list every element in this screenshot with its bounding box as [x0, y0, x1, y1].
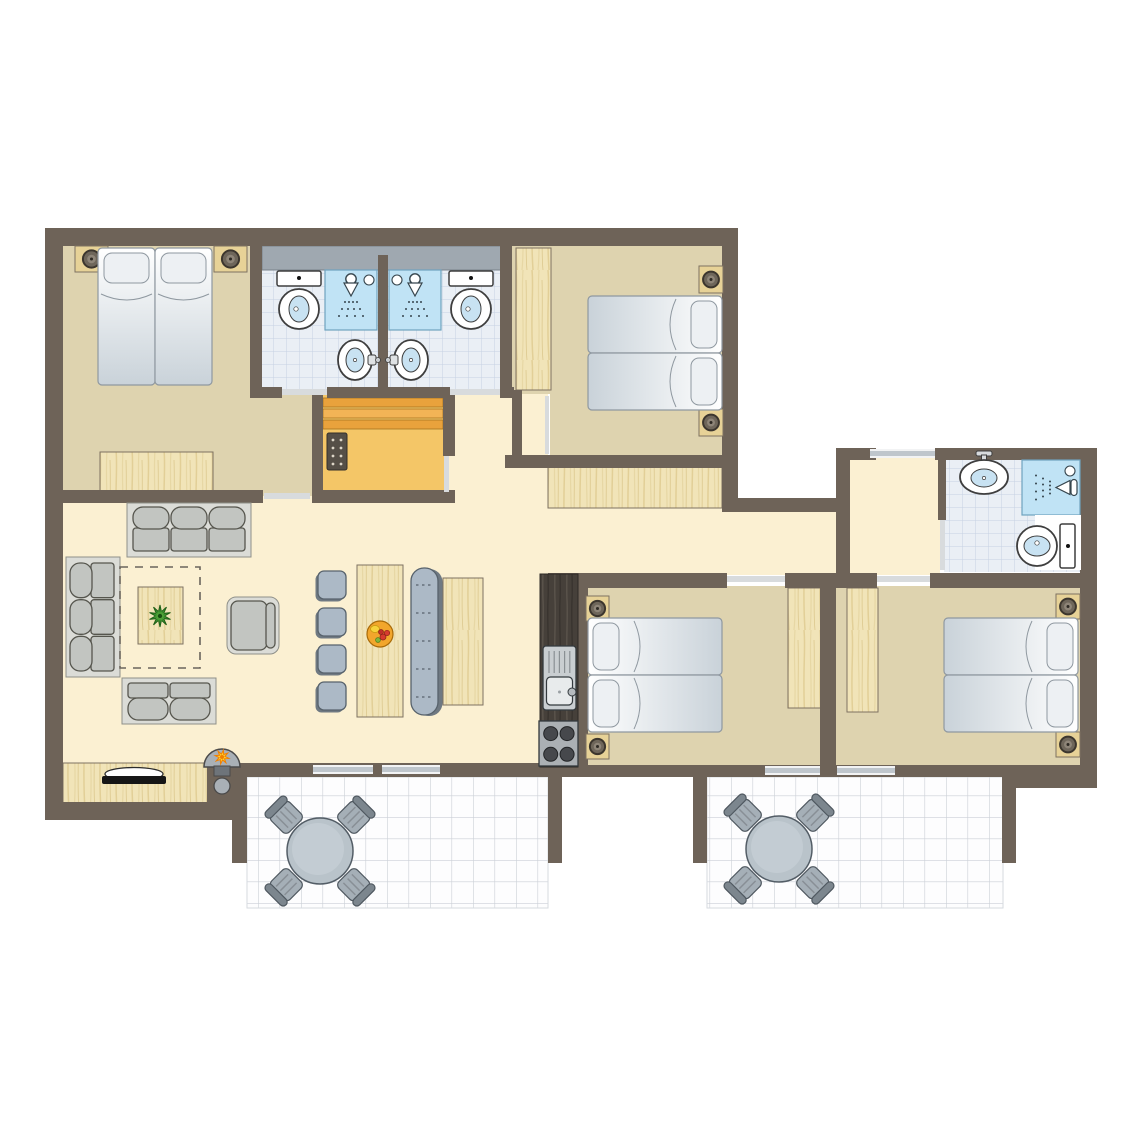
wall-wing-west — [836, 448, 850, 573]
dining-chair — [316, 645, 347, 676]
door-sauna — [444, 456, 449, 492]
flue-outlet — [214, 778, 230, 794]
wall-bath-left — [250, 246, 262, 390]
wall-bath-right — [500, 246, 512, 390]
toilet — [1017, 524, 1075, 568]
dining-chair — [316, 682, 347, 713]
hall-closet — [548, 466, 722, 508]
sofa-3-seat — [127, 503, 251, 557]
sauna-control-panel — [327, 433, 347, 470]
sofa-3-seat — [66, 557, 120, 677]
nightstand-lamp — [1056, 594, 1080, 619]
window-bedroom3 — [765, 766, 820, 775]
dining-bench — [411, 568, 443, 716]
floor-plan — [0, 0, 1145, 1145]
single-bed — [588, 353, 722, 410]
nightstand-lamp — [586, 734, 609, 759]
window-living-1 — [313, 765, 373, 774]
side-table — [443, 578, 483, 705]
single-bed — [944, 618, 1078, 675]
terrace1-stub-east — [548, 777, 562, 863]
wall-notch-south — [722, 498, 850, 512]
dining-chair — [316, 571, 347, 602]
nightstand-lamp — [586, 596, 609, 621]
toilet — [277, 271, 321, 329]
wall-corner-se — [1013, 775, 1097, 788]
hallway-floor — [548, 505, 840, 575]
wall-top — [45, 228, 737, 246]
toilet — [449, 271, 493, 329]
floor-plan-svg — [0, 0, 1145, 1145]
wall-hall-south-c — [930, 573, 1080, 588]
terrace2-stub-east — [1002, 777, 1016, 863]
single-bed — [944, 675, 1078, 732]
sofa-2-seat — [122, 678, 216, 724]
single-bed — [98, 248, 155, 385]
floor-plan-canvas — [0, 0, 1145, 1145]
wall-left — [45, 228, 63, 820]
sauna-benches — [323, 398, 443, 429]
single-bed — [588, 675, 722, 732]
right-hall-floor — [846, 458, 940, 575]
wall-hall-south-b — [785, 573, 877, 588]
single-bed — [588, 296, 722, 353]
window-hall — [870, 449, 935, 458]
door-bedroom2 — [545, 396, 549, 454]
door-bathroom-wing — [940, 520, 945, 570]
nightstand-lamp — [699, 266, 723, 293]
wall-right — [1080, 448, 1097, 788]
bedroom2-wardrobe — [516, 248, 551, 390]
shower — [389, 270, 441, 330]
wall-bedroom2-south — [505, 455, 738, 468]
dining-chair — [316, 608, 347, 639]
bedroom3-wardrobe — [788, 588, 821, 708]
single-bed — [155, 248, 212, 385]
wall-sauna-east-a — [443, 393, 455, 456]
door-bathroom-right — [450, 389, 500, 395]
door-bedroom1 — [264, 493, 310, 499]
wall-bath-south-c — [500, 387, 514, 398]
bedroom4-wardrobe — [847, 588, 878, 712]
wall-wingbath-west — [938, 458, 946, 520]
bedroom1-floor-ext — [250, 390, 318, 496]
terrace2-stub-west — [693, 777, 707, 863]
nightstand-lamp — [1056, 732, 1080, 757]
bedroom1-dresser — [100, 452, 213, 491]
kitchen-sink — [543, 646, 576, 710]
wall-bedroom1-south — [45, 490, 263, 503]
wall-wing-north-b — [935, 448, 1097, 460]
wall-bedroom2-east — [722, 228, 738, 500]
corridor-floor — [443, 390, 548, 508]
window-living-2 — [382, 765, 440, 774]
fruit-bowl — [367, 621, 393, 647]
wall-bedroom2-stub — [512, 390, 522, 458]
wall-bath-south-a — [250, 387, 282, 398]
tv — [102, 768, 166, 785]
kitchen-stove — [539, 721, 578, 766]
single-bed — [588, 618, 722, 675]
wall-bedroom34-divider — [820, 586, 836, 768]
shower — [1022, 460, 1080, 515]
nightstand-lamp — [699, 409, 723, 436]
wall-bath-south-b — [327, 387, 450, 398]
armchair — [227, 597, 279, 654]
door-bathroom-left — [282, 389, 327, 395]
window-bedroom4 — [837, 766, 895, 775]
wall-sauna-south — [312, 490, 455, 503]
door-bedroom3 — [727, 576, 785, 582]
shower — [325, 270, 377, 330]
wall-bath-divider — [378, 255, 388, 389]
wall-sauna-west — [312, 393, 323, 503]
nightstand-lamp — [214, 246, 247, 272]
door-bedroom4 — [877, 576, 930, 582]
